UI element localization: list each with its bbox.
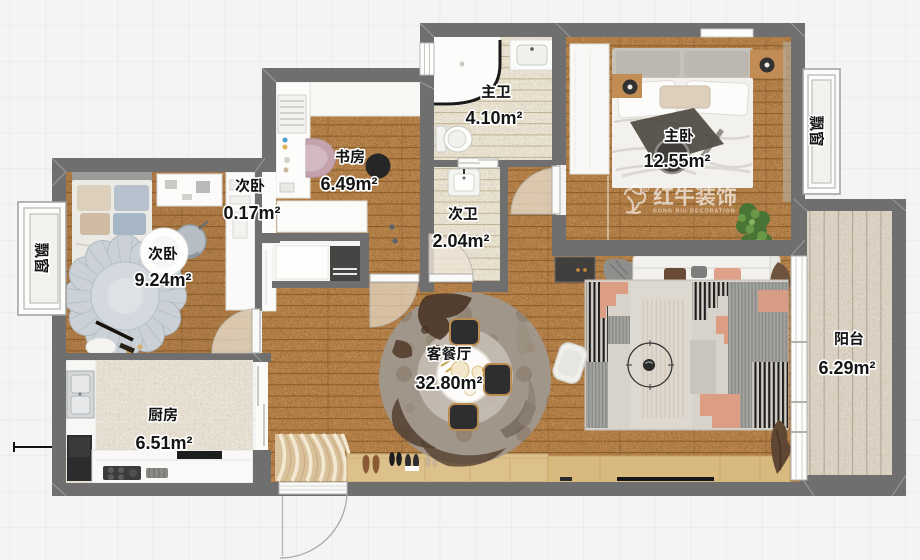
svg-text:12.55m²: 12.55m² [643, 151, 710, 171]
svg-text:R: R [644, 187, 647, 192]
svg-text:6.51m²: 6.51m² [135, 433, 192, 453]
svg-text:HONG NIU DECORATION: HONG NIU DECORATION [653, 209, 736, 215]
svg-text:6.49m²: 6.49m² [320, 174, 377, 194]
svg-text:6.29m²: 6.29m² [818, 358, 875, 378]
svg-text:9.24m²: 9.24m² [134, 270, 191, 290]
svg-text:32.80m²: 32.80m² [415, 373, 482, 393]
svg-text:0.17m²: 0.17m² [223, 203, 280, 223]
svg-text:4.10m²: 4.10m² [465, 108, 522, 128]
svg-text:2.04m²: 2.04m² [432, 231, 489, 251]
